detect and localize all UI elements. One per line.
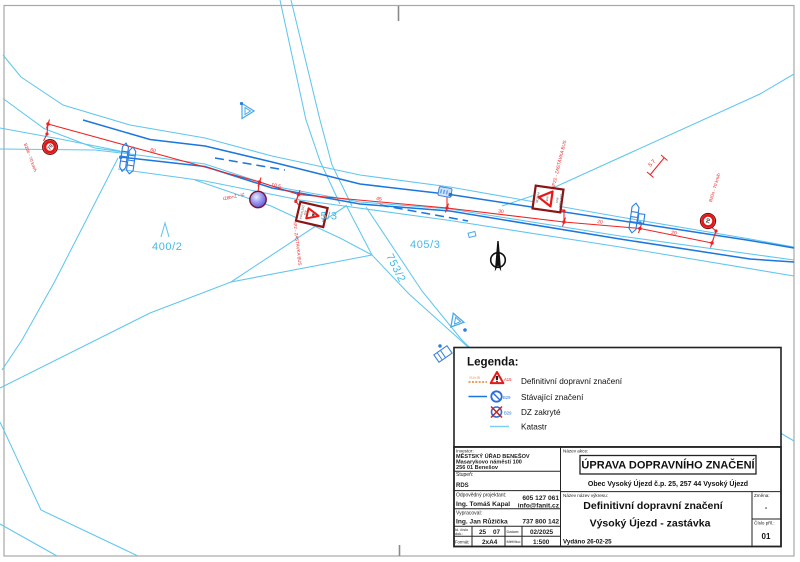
svg-text:Název akce:: Název akce: — [563, 449, 588, 454]
svg-text:Měřítko:: Měřítko: — [507, 539, 521, 544]
svg-text:Ing. Tomáš Kapal: Ing. Tomáš Kapal — [456, 501, 510, 508]
svg-text:Datum:: Datum: — [507, 529, 520, 534]
svg-text:DZ zakryté: DZ zakryté — [521, 408, 561, 417]
svg-text:Stávající značení: Stávající značení — [521, 393, 584, 402]
svg-text:07: 07 — [493, 529, 501, 536]
svg-text:01: 01 — [762, 532, 771, 541]
svg-text:Výsoký Újezd - zastávka: Výsoký Újezd - zastávka — [590, 517, 711, 530]
svg-text:20: 20 — [597, 219, 603, 226]
svg-text:Číslo příl.:: Číslo příl.: — [754, 520, 775, 526]
svg-text:ÚPRAVA DOPRAVNÍHO ZNAČENÍ: ÚPRAVA DOPRAVNÍHO ZNAČENÍ — [581, 459, 755, 472]
svg-text:2xA4: 2xA4 — [482, 539, 498, 546]
svg-text:Legenda:: Legenda: — [467, 356, 519, 369]
svg-text:5/3: 5/3 — [321, 211, 338, 223]
svg-text:1:500: 1:500 — [533, 539, 550, 546]
svg-text:Katastr: Katastr — [521, 423, 547, 432]
svg-text:dok.:: dok.: — [455, 532, 463, 536]
svg-text:Změna:: Změna: — [754, 493, 770, 498]
svg-text:Ing. Jan Růžička: Ing. Jan Růžička — [456, 518, 508, 526]
svg-text:737 800 142: 737 800 142 — [522, 519, 559, 526]
svg-text:02/2025: 02/2025 — [530, 529, 554, 536]
svg-text:256 01 Benešov: 256 01 Benešov — [456, 465, 499, 471]
svg-text:405/3: 405/3 — [410, 239, 441, 251]
svg-text:Definitivní dopravní značení: Definitivní dopravní značení — [521, 377, 623, 386]
svg-text:20: 20 — [671, 230, 678, 237]
svg-text:RDS: RDS — [456, 483, 469, 489]
svg-text:Definitivní dopravní značení: Definitivní dopravní značení — [583, 500, 724, 512]
svg-text:Vydáno 26-02-25: Vydáno 26-02-25 — [563, 539, 612, 546]
svg-text:Obec Vysoký Újezd č.p. 25, 25: Obec Vysoký Újezd č.p. 25, 257 44 Vysoký… — [588, 479, 748, 488]
svg-text:45: 45 — [376, 196, 382, 203]
svg-text:25: 25 — [479, 529, 487, 536]
svg-text:V11a (5): V11a (5) — [469, 376, 480, 380]
svg-text:info@fanit.cz: info@fanit.cz — [518, 503, 560, 510]
svg-text:Formát:: Formát: — [455, 540, 469, 545]
svg-text:Vypracoval:: Vypracoval: — [456, 511, 482, 517]
svg-text:30: 30 — [498, 209, 504, 216]
svg-text:B29: B29 — [504, 411, 512, 416]
svg-text:Název název výkresu:: Název název výkresu: — [563, 493, 608, 498]
svg-text:605 127 061: 605 127 061 — [522, 495, 559, 502]
svg-text:B29: B29 — [503, 395, 511, 400]
svg-text:Odpovědný projektant:: Odpovědný projektant: — [456, 493, 506, 499]
svg-text:A15: A15 — [504, 377, 512, 382]
svg-text:Stupeň:: Stupeň: — [456, 472, 473, 478]
svg-text:400/2: 400/2 — [152, 241, 183, 253]
svg-text:Investor:: Investor: — [456, 449, 474, 454]
